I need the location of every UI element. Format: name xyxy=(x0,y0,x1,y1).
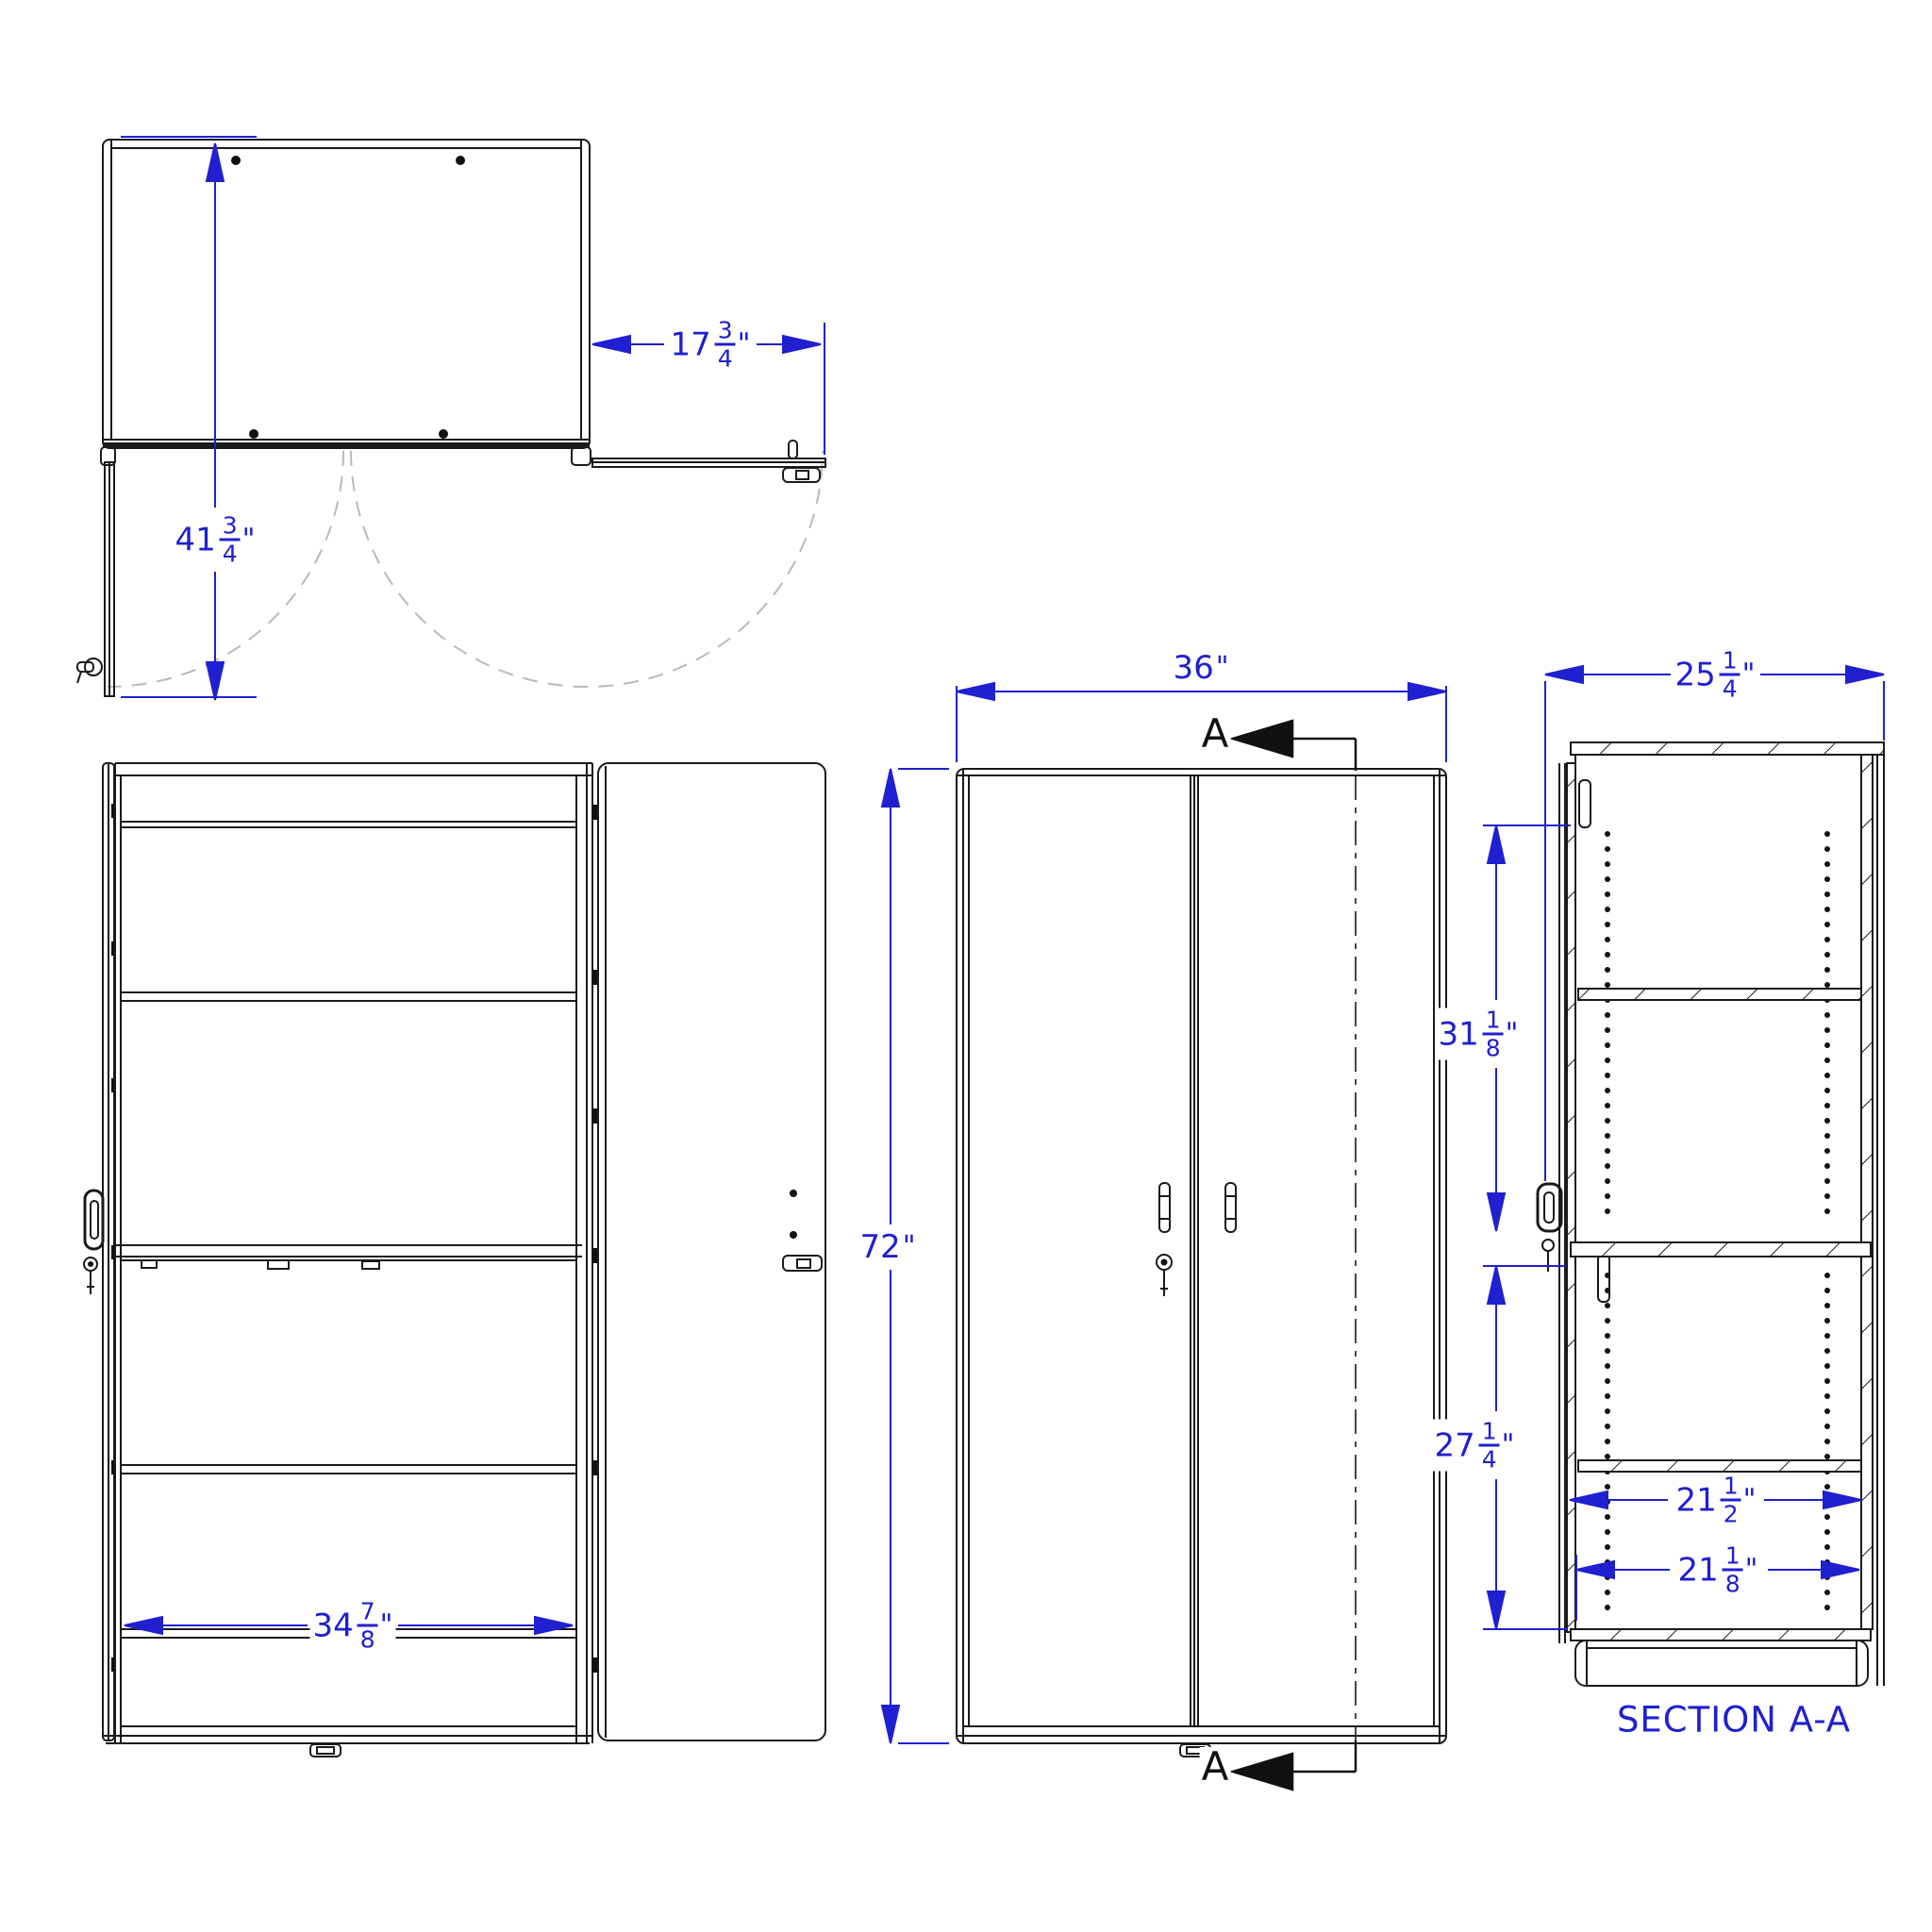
left-door-pull xyxy=(1159,1183,1170,1232)
door-catch-middle xyxy=(1598,1255,1609,1302)
dim-door-width: 17 34 " xyxy=(668,319,754,371)
front-open-view xyxy=(84,763,825,1757)
dim-interior-width: 34 78 " xyxy=(310,1600,396,1652)
door-handle-grip xyxy=(796,471,808,479)
top-view xyxy=(77,140,825,696)
fixed-middle-shelf xyxy=(1571,1242,1871,1257)
adjustable-shelf-lower xyxy=(1578,1460,1861,1472)
top-panel-section xyxy=(1571,742,1884,755)
dim-overall-depth: 25 14 " xyxy=(1673,649,1758,701)
key-in-lock xyxy=(1157,1255,1172,1296)
adjustable-shelf-upper xyxy=(1578,989,1861,1000)
cabinet-top-outline xyxy=(103,140,590,448)
dim-overall-height: 72 " xyxy=(857,1231,918,1263)
dim-overall-width: 36 " xyxy=(1170,652,1231,684)
dim-upper-interior-height: 31 18 " xyxy=(1436,1008,1522,1060)
door-pull-recess xyxy=(91,1201,98,1239)
key-in-lock xyxy=(84,1257,97,1294)
door-pull-handle xyxy=(85,1191,103,1249)
dim-lower-shelf-depth: 21 18 " xyxy=(1675,1544,1761,1596)
right-door-open-face xyxy=(598,763,825,1740)
door-face-handle-grip xyxy=(797,1259,810,1268)
right-hinge xyxy=(572,447,591,465)
cad-drawing-page: 17 34 " 41 34 " 34 78 " 36 " 72 " 25 14 … xyxy=(0,0,1932,1932)
left-door-open-plan xyxy=(77,462,114,696)
screw-dots xyxy=(231,156,465,439)
front-closed-view xyxy=(957,769,1446,1757)
section-marker-bottom-label: A xyxy=(1200,1747,1231,1787)
dim-upper-shelf-depth: 21 12 " xyxy=(1674,1474,1759,1526)
door-catch-top xyxy=(1579,780,1591,827)
shelf-clip xyxy=(362,1261,379,1269)
section-markers xyxy=(1233,721,1356,1790)
dim-open-door-depth: 41 34 " xyxy=(173,514,258,566)
door-lock-stub xyxy=(789,441,797,458)
top-view-dimensions xyxy=(121,137,824,700)
cabinet-outline xyxy=(957,769,1446,1743)
left-door-edge xyxy=(84,763,116,1740)
shelf-clip xyxy=(142,1260,157,1268)
door-pull-handle xyxy=(1538,1184,1561,1231)
shelf-clip xyxy=(268,1260,289,1269)
drawing-canvas xyxy=(0,0,1932,1932)
right-door-open-plan xyxy=(592,441,825,482)
dim-lower-interior-height: 27 14 " xyxy=(1432,1420,1518,1472)
section-marker-top-label: A xyxy=(1200,714,1231,754)
right-door-pull xyxy=(1225,1183,1236,1232)
kick-handle xyxy=(310,1744,341,1757)
section-view-title: SECTION A-A xyxy=(1617,1703,1851,1738)
front-closed-dimensions xyxy=(882,683,1446,1743)
section-arrow-bottom xyxy=(1233,1754,1292,1790)
section-arrow-top xyxy=(1233,721,1292,757)
lock-screw-dots xyxy=(790,1190,797,1239)
kick-handle-grip xyxy=(317,1747,334,1754)
back-panel-section xyxy=(1861,755,1873,1629)
bottom-panel-section xyxy=(1571,1629,1871,1641)
